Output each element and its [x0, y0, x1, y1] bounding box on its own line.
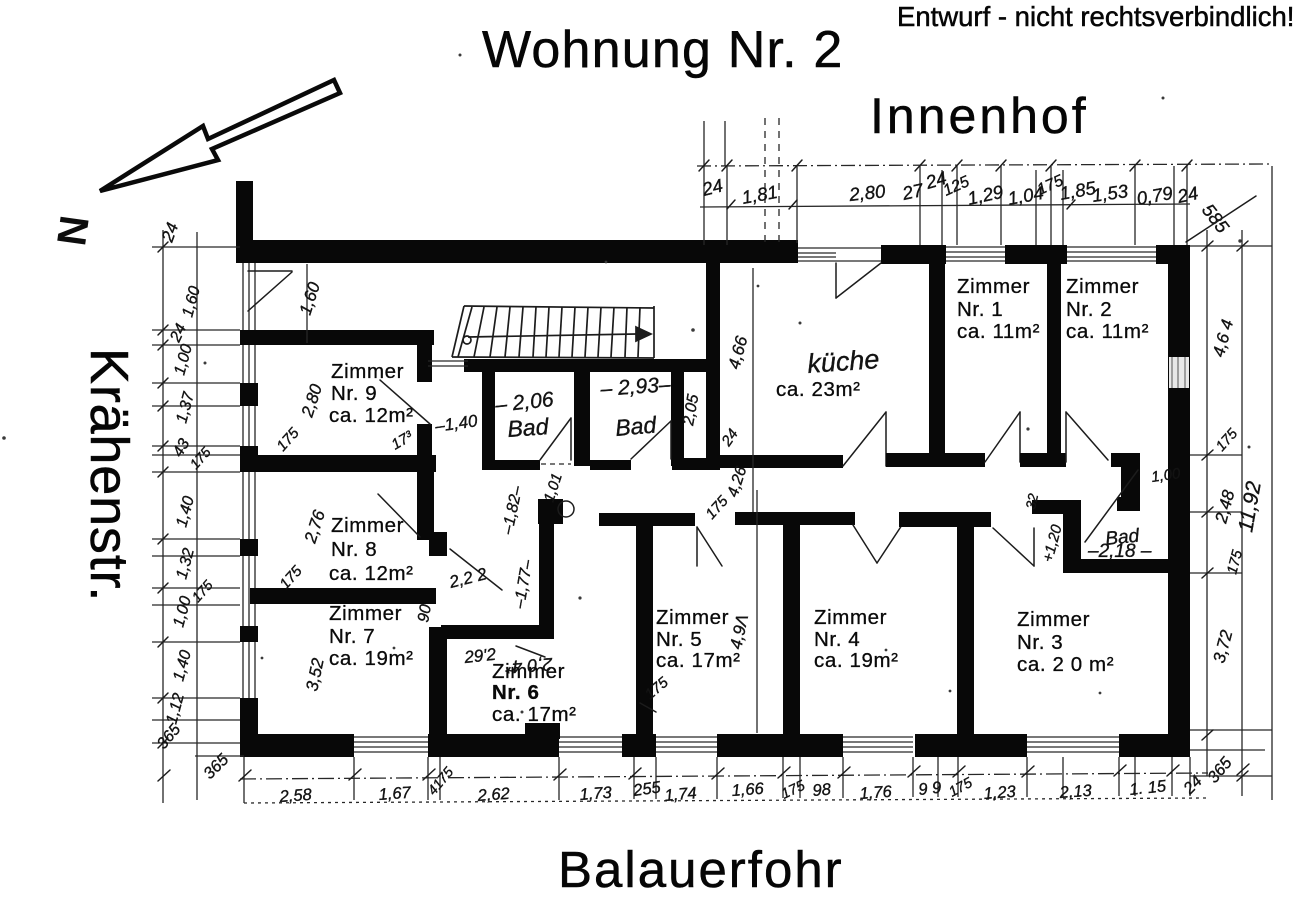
svg-text:Nr. 4: Nr. 4: [814, 628, 860, 651]
svg-text:ca. 19m²: ca. 19m²: [329, 647, 414, 670]
svg-text:ca. 19m²: ca. 19m²: [814, 649, 899, 672]
svg-text:90: 90: [415, 603, 435, 624]
svg-text:ca. 12m²: ca. 12m²: [329, 562, 414, 585]
svg-text:1,23: 1,23: [983, 783, 1017, 803]
svg-text:1,73: 1,73: [579, 784, 613, 804]
svg-text:Nr. 8: Nr. 8: [331, 538, 377, 561]
svg-text:2,80: 2,80: [847, 180, 887, 205]
svg-text:ca. 17m²: ca. 17m²: [492, 703, 577, 726]
svg-text:ca. 17m²: ca. 17m²: [656, 649, 741, 672]
svg-text:Zimmer: Zimmer: [814, 606, 887, 629]
svg-text:küche: küche: [806, 344, 880, 379]
svg-text:Zimmer: Zimmer: [1066, 275, 1139, 298]
svg-text:1,76: 1,76: [859, 783, 893, 803]
svg-text:Krähenstr.: Krähenstr.: [79, 348, 139, 602]
svg-text:–2,18 –: –2,18 –: [1087, 541, 1152, 562]
svg-text:Zimmer: Zimmer: [656, 606, 729, 629]
svg-text:Nr. 3: Nr. 3: [1017, 631, 1063, 654]
svg-text:9 9: 9 9: [918, 779, 943, 799]
svg-text:2,0 4*: 2,0 4*: [504, 654, 554, 677]
svg-text:Nr. 9: Nr. 9: [331, 382, 377, 405]
svg-text:Nr. 6: Nr. 6: [492, 681, 539, 704]
svg-text:Zimmer: Zimmer: [331, 360, 404, 383]
svg-text:1,74: 1,74: [664, 784, 698, 805]
svg-text:Zimmer: Zimmer: [331, 514, 404, 537]
svg-text:2,58: 2,58: [278, 786, 313, 806]
svg-text:Bad: Bad: [614, 411, 658, 441]
svg-text:ca. 11m²: ca. 11m²: [957, 320, 1040, 343]
svg-text:Entwurf - nicht rechtsverbindl: Entwurf - nicht rechtsverbindlich!: [897, 1, 1294, 32]
svg-text:ca. 23m²: ca. 23m²: [776, 378, 861, 401]
svg-text:Nr. 7: Nr. 7: [329, 625, 375, 648]
svg-text:29'2: 29'2: [462, 645, 497, 667]
svg-text:Bad: Bad: [507, 413, 551, 442]
svg-text:ca. 11m²: ca. 11m²: [1066, 320, 1149, 343]
svg-text:2,13: 2,13: [1058, 782, 1093, 802]
svg-text:Wohnung Nr. 2: Wohnung Nr. 2: [482, 21, 844, 79]
svg-text:ca. 12m²: ca. 12m²: [329, 404, 414, 427]
svg-text:Nr. 1: Nr. 1: [957, 298, 1003, 321]
svg-text:1,66: 1,66: [731, 780, 765, 800]
svg-text:24: 24: [1174, 182, 1199, 207]
svg-text:Innenhof: Innenhof: [870, 88, 1089, 144]
svg-text:ca. 2 0 m²: ca. 2 0 m²: [1017, 653, 1114, 676]
svg-text:N: N: [48, 213, 98, 249]
svg-text:Nr. 2: Nr. 2: [1066, 298, 1112, 321]
svg-text:Zimmer: Zimmer: [329, 602, 402, 625]
svg-text:Nr. 5: Nr. 5: [656, 628, 702, 651]
svg-text:Balauerfohr: Balauerfohr: [558, 841, 844, 898]
svg-text:Zimmer: Zimmer: [1017, 608, 1090, 631]
svg-text:98: 98: [812, 780, 833, 800]
svg-text:2,62: 2,62: [476, 785, 510, 805]
svg-text:Zimmer: Zimmer: [957, 275, 1030, 298]
svg-text:1,67: 1,67: [378, 784, 412, 804]
